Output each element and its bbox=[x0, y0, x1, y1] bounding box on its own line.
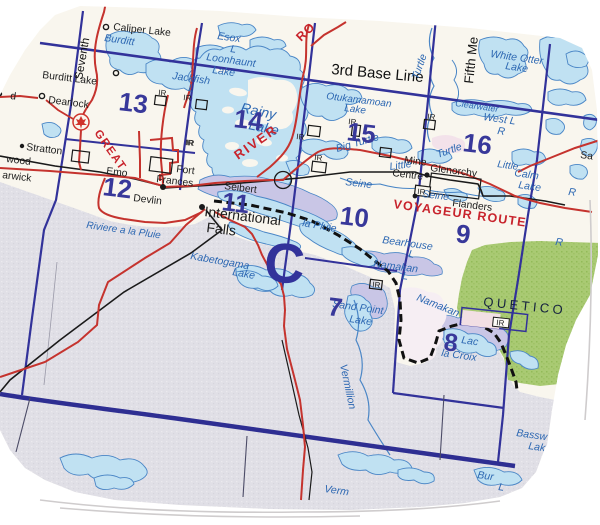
svg-text:IR: IR bbox=[183, 93, 192, 103]
svg-text:IR: IR bbox=[427, 112, 436, 122]
svg-text:IR: IR bbox=[314, 153, 323, 163]
svg-text:11: 11 bbox=[220, 186, 251, 219]
svg-text:13: 13 bbox=[117, 86, 149, 119]
svg-text:Lac: Lac bbox=[461, 334, 480, 348]
svg-text:14: 14 bbox=[232, 103, 265, 136]
svg-text:10: 10 bbox=[338, 200, 370, 233]
svg-text:16: 16 bbox=[461, 127, 493, 160]
svg-text:IR: IR bbox=[158, 88, 167, 98]
svg-text:C: C bbox=[262, 230, 307, 296]
svg-text:Fort: Fort bbox=[176, 164, 196, 177]
svg-text:IR: IR bbox=[496, 318, 505, 328]
svg-text:IR: IR bbox=[417, 187, 426, 197]
svg-text:Bur: Bur bbox=[477, 469, 495, 483]
svg-text:IR: IR bbox=[296, 132, 305, 142]
svg-text:IR: IR bbox=[372, 280, 381, 290]
svg-text:15: 15 bbox=[345, 116, 377, 149]
svg-text:12: 12 bbox=[101, 171, 133, 204]
svg-text:Sa: Sa bbox=[580, 150, 594, 162]
svg-text:IR: IR bbox=[185, 138, 194, 148]
